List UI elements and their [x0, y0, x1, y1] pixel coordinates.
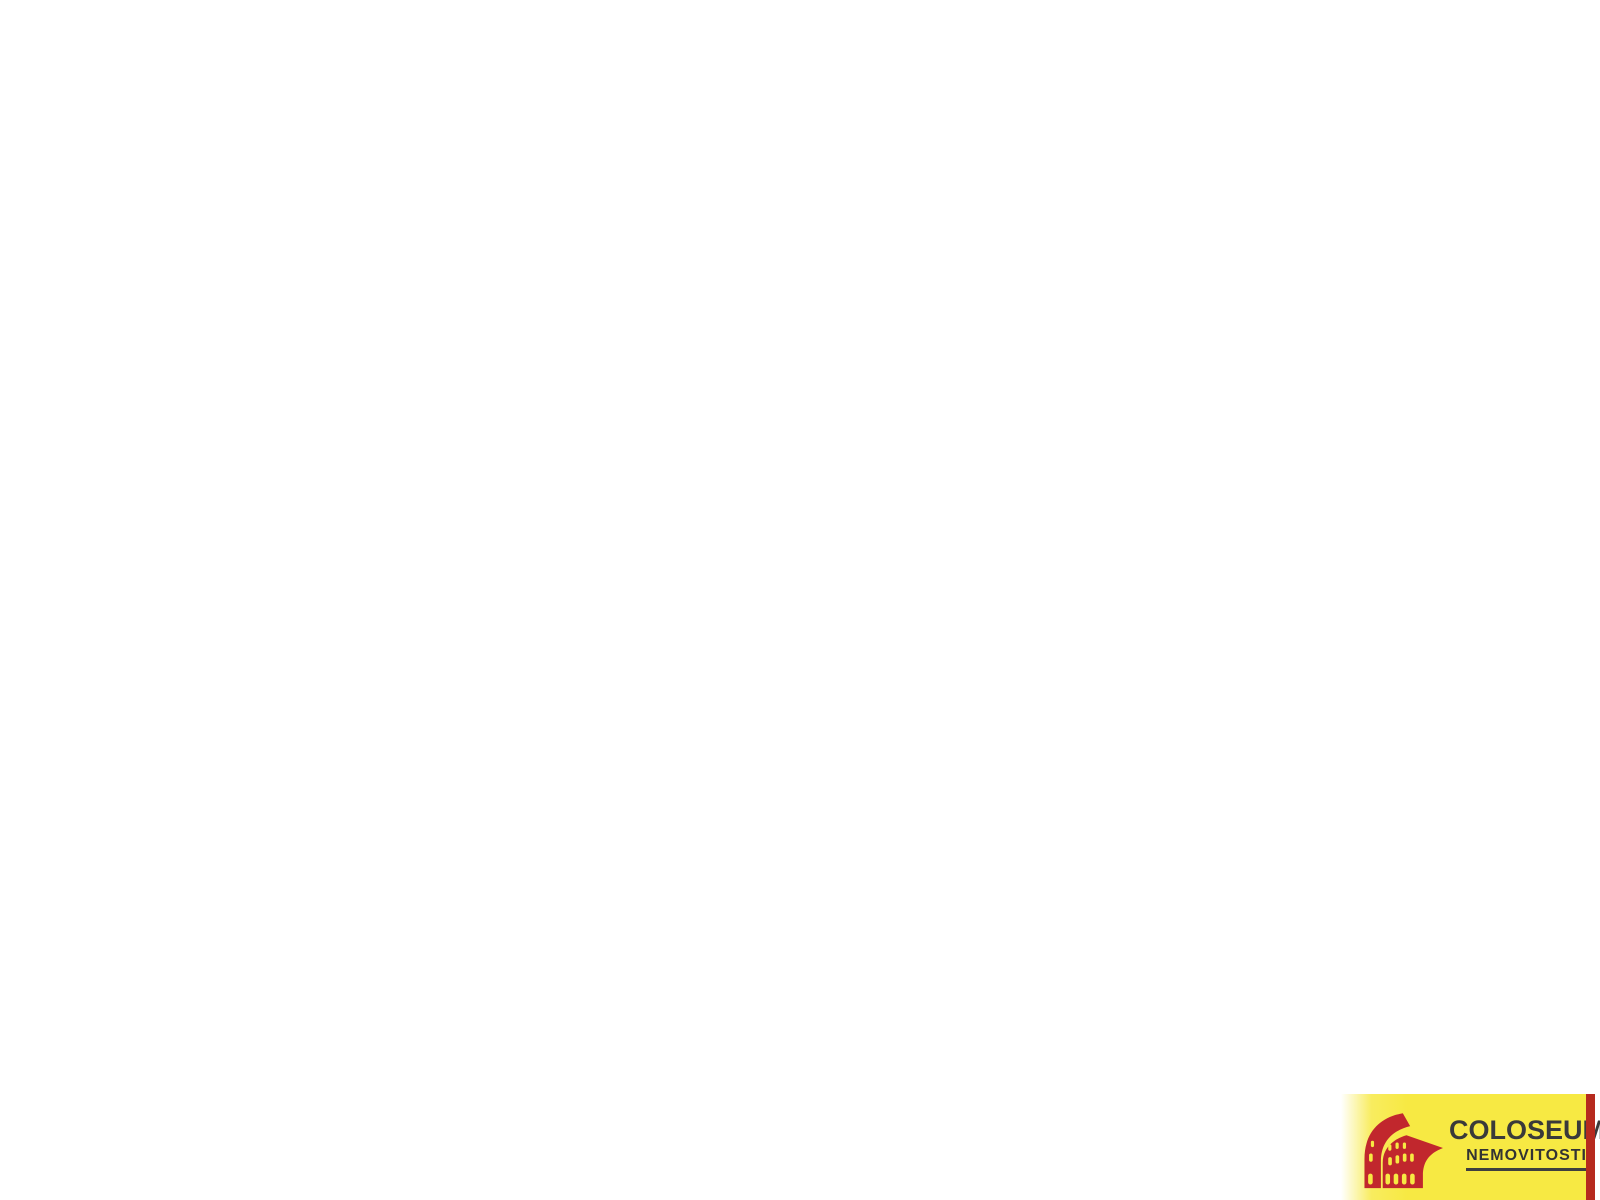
brand-text: COLOSEUM® NEMOVITOSTI [1449, 1111, 1587, 1171]
brand-subtitle: NEMOVITOSTI [1466, 1147, 1587, 1171]
logo-red-stripe [1586, 1094, 1595, 1200]
brand-title: COLOSEUM® [1449, 1111, 1587, 1145]
floorplan: COLOSEUM® NEMOVITOSTI [0, 0, 1600, 1200]
colosseum-icon [1355, 1106, 1447, 1190]
brand-logo: COLOSEUM® NEMOVITOSTI [1341, 1094, 1595, 1200]
floorplan-3d-canvas [0, 0, 1600, 1200]
